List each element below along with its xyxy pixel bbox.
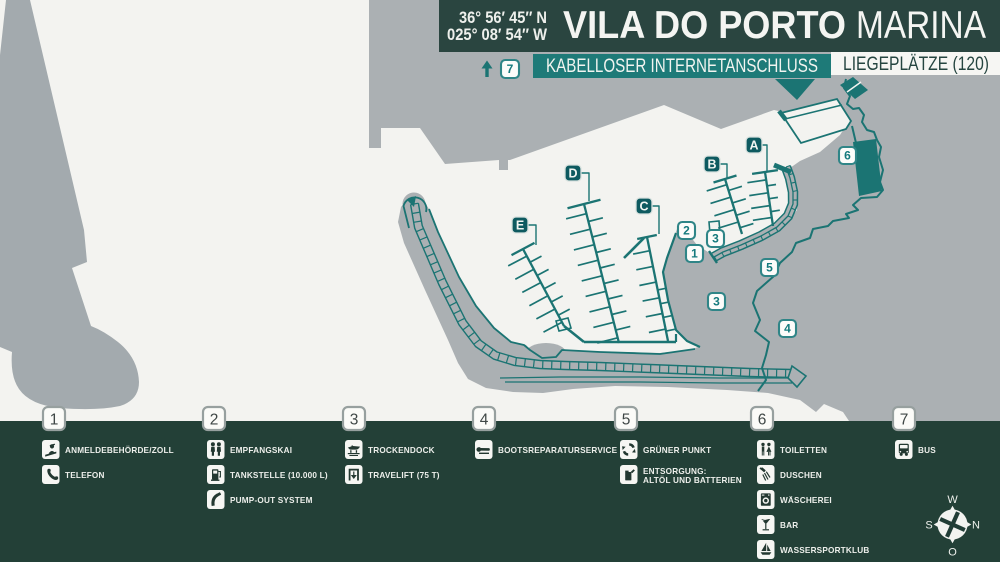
svg-text:DUSCHEN: DUSCHEN bbox=[780, 471, 822, 480]
svg-text:4: 4 bbox=[480, 412, 489, 429]
svg-text:A: A bbox=[749, 138, 758, 152]
svg-text:6: 6 bbox=[758, 412, 767, 429]
svg-text:VILA DO PORTO: VILA DO PORTO bbox=[563, 4, 846, 47]
svg-text:TANKSTELLE (10.000 L): TANKSTELLE (10.000 L) bbox=[230, 471, 328, 480]
svg-text:WÄSCHEREI: WÄSCHEREI bbox=[780, 495, 832, 505]
svg-text:5: 5 bbox=[766, 261, 773, 275]
svg-text:3: 3 bbox=[712, 232, 719, 246]
svg-text:S: S bbox=[925, 520, 932, 532]
svg-text:3: 3 bbox=[350, 412, 359, 429]
svg-text:MARINA: MARINA bbox=[856, 4, 986, 47]
svg-text:BUS: BUS bbox=[918, 446, 936, 455]
svg-text:TOILETTEN: TOILETTEN bbox=[780, 446, 827, 455]
svg-text:W: W bbox=[947, 494, 958, 506]
svg-text:BAR: BAR bbox=[780, 521, 798, 530]
svg-text:1: 1 bbox=[691, 247, 698, 261]
svg-text:ANMELDEBEHÖRDE/ZOLL: ANMELDEBEHÖRDE/ZOLL bbox=[65, 445, 174, 455]
svg-text:TROCKENDOCK: TROCKENDOCK bbox=[368, 446, 435, 455]
svg-text:7: 7 bbox=[507, 62, 514, 76]
svg-text:O: O bbox=[948, 547, 957, 559]
svg-text:E: E bbox=[516, 218, 524, 232]
svg-text:2: 2 bbox=[210, 412, 219, 429]
svg-text:ALTÖL UND BATTERIEN: ALTÖL UND BATTERIEN bbox=[643, 475, 742, 485]
svg-text:D: D bbox=[568, 166, 577, 180]
svg-text:3: 3 bbox=[713, 295, 720, 309]
svg-text:ENTSORGUNG:: ENTSORGUNG: bbox=[643, 467, 707, 476]
svg-text:TELEFON: TELEFON bbox=[65, 471, 105, 480]
svg-text:N: N bbox=[972, 520, 980, 532]
svg-text:LIEGEPLÄTZE (120): LIEGEPLÄTZE (120) bbox=[843, 54, 989, 75]
svg-text:PUMP-OUT SYSTEM: PUMP-OUT SYSTEM bbox=[230, 496, 313, 505]
svg-text:B: B bbox=[707, 157, 716, 171]
svg-text:6: 6 bbox=[844, 149, 851, 163]
svg-text:EMPFANGSKAI: EMPFANGSKAI bbox=[230, 446, 292, 455]
svg-text:TRAVELIFT (75 T): TRAVELIFT (75 T) bbox=[368, 471, 440, 480]
svg-text:KABELLOSER INTERNETANSCHLUSS: KABELLOSER INTERNETANSCHLUSS bbox=[546, 56, 818, 77]
svg-text:025° 08′ 54″ W: 025° 08′ 54″ W bbox=[447, 26, 547, 44]
svg-text:2: 2 bbox=[683, 224, 690, 238]
svg-text:WASSERSPORTKLUB: WASSERSPORTKLUB bbox=[780, 546, 869, 555]
svg-text:5: 5 bbox=[622, 412, 631, 429]
svg-text:C: C bbox=[639, 199, 648, 213]
svg-text:1: 1 bbox=[50, 412, 59, 429]
svg-text:7: 7 bbox=[900, 412, 909, 429]
svg-text:4: 4 bbox=[784, 322, 791, 336]
svg-text:GRÜNER PUNKT: GRÜNER PUNKT bbox=[643, 445, 711, 455]
svg-text:BOOTSREPARATURSERVICE: BOOTSREPARATURSERVICE bbox=[498, 446, 618, 455]
svg-text:36° 56′ 45″ N: 36° 56′ 45″ N bbox=[459, 9, 547, 27]
